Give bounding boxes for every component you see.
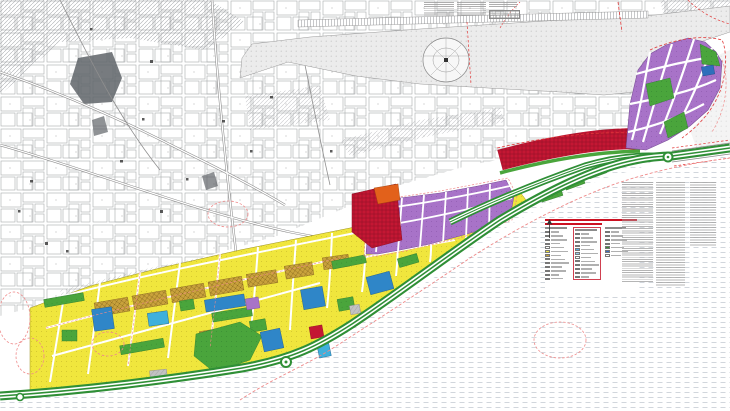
legend-item [575,275,599,278]
legend-swatch [575,268,580,270]
legend-swatch [575,248,580,250]
legend-label [581,261,595,263]
legend-swatch [545,278,550,280]
zoning-plan-canvas [0,0,730,411]
roundabout [17,394,24,401]
legend-swatch [545,262,550,264]
legend-swatch [545,270,550,272]
red-parcel [309,325,324,339]
legend-label [581,253,598,255]
legend-item [575,244,599,247]
legend-label [581,245,590,247]
legend-label [551,255,561,257]
legend-item [545,250,569,253]
legend-swatch [545,243,550,245]
legend-swatch [605,250,610,252]
purple-parcel [245,297,260,310]
legend-item [545,254,569,257]
legend-label [611,231,619,233]
legend-swatch [575,241,580,243]
legend-label [581,276,589,278]
fine-print-column [656,182,685,287]
legend-item [575,264,599,267]
legend-swatch [575,260,580,262]
north-arrow-icon [545,219,554,239]
legend-label [611,243,620,245]
legend-swatch [575,272,580,274]
legend-label [551,270,566,272]
fine-print-column [690,182,716,247]
legend-label [581,257,591,259]
legend-swatch [605,254,610,256]
legend-swatch [575,264,580,266]
legend-item [545,277,569,280]
legend-label [551,243,560,245]
legend-item [545,242,569,245]
legend-swatch [575,256,580,258]
legend-column-header [575,229,597,231]
legend-swatch [545,250,550,252]
legend-swatch [605,235,610,237]
legend-swatch [575,252,580,254]
legend-item [545,262,569,265]
legend-label [581,233,589,235]
legend-label [551,278,563,280]
legend-item [575,233,599,236]
legend-label [581,237,593,239]
legend-item [575,240,599,243]
legend-label [551,247,564,249]
legend-swatch [575,245,580,247]
legend-label [551,274,559,276]
legend-item [575,248,599,251]
legend-label [581,241,597,243]
legend-swatch [545,274,550,276]
legend-swatch [575,237,580,239]
legend-swatch [605,239,610,241]
top-notes-column [424,2,454,16]
legend-label [581,268,592,270]
gray-parcel [349,304,360,315]
legend-swatch [545,246,550,248]
legend-label [581,249,594,251]
legend-label [551,266,562,268]
legend-swatch [605,246,610,248]
legend-item [545,270,569,273]
legend-item [575,272,599,275]
top-notes-table [489,10,520,19]
legend-item [575,237,599,240]
legend-swatch [605,231,610,233]
legend-swatch [575,233,580,235]
plan-map [0,0,730,411]
legend-swatch [545,254,550,256]
legend-label [581,264,599,266]
legend-item [575,260,599,263]
legend-column-proposed-uses [573,227,601,280]
legend-label [611,255,621,257]
top-notes-column [457,2,486,16]
legend-item [575,252,599,255]
legend-item [545,258,569,261]
legend-item [545,246,569,249]
legend-item [575,268,599,271]
legend-item [545,273,569,276]
fine-print-column [622,182,653,283]
legend-item [575,256,599,259]
legend-swatch [605,243,610,245]
top-notes-column [489,2,517,8]
legend-label [551,262,569,264]
legend-swatch [545,266,550,268]
legend-label [551,259,565,261]
legend-label [551,239,567,241]
oval-parcel-cluster [423,38,469,82]
legend-item [545,266,569,269]
legend-label [551,251,568,253]
legend-label [581,272,596,274]
ne-blue-parcel [701,65,714,76]
legend-swatch [545,258,550,260]
legend-swatch [575,276,580,278]
